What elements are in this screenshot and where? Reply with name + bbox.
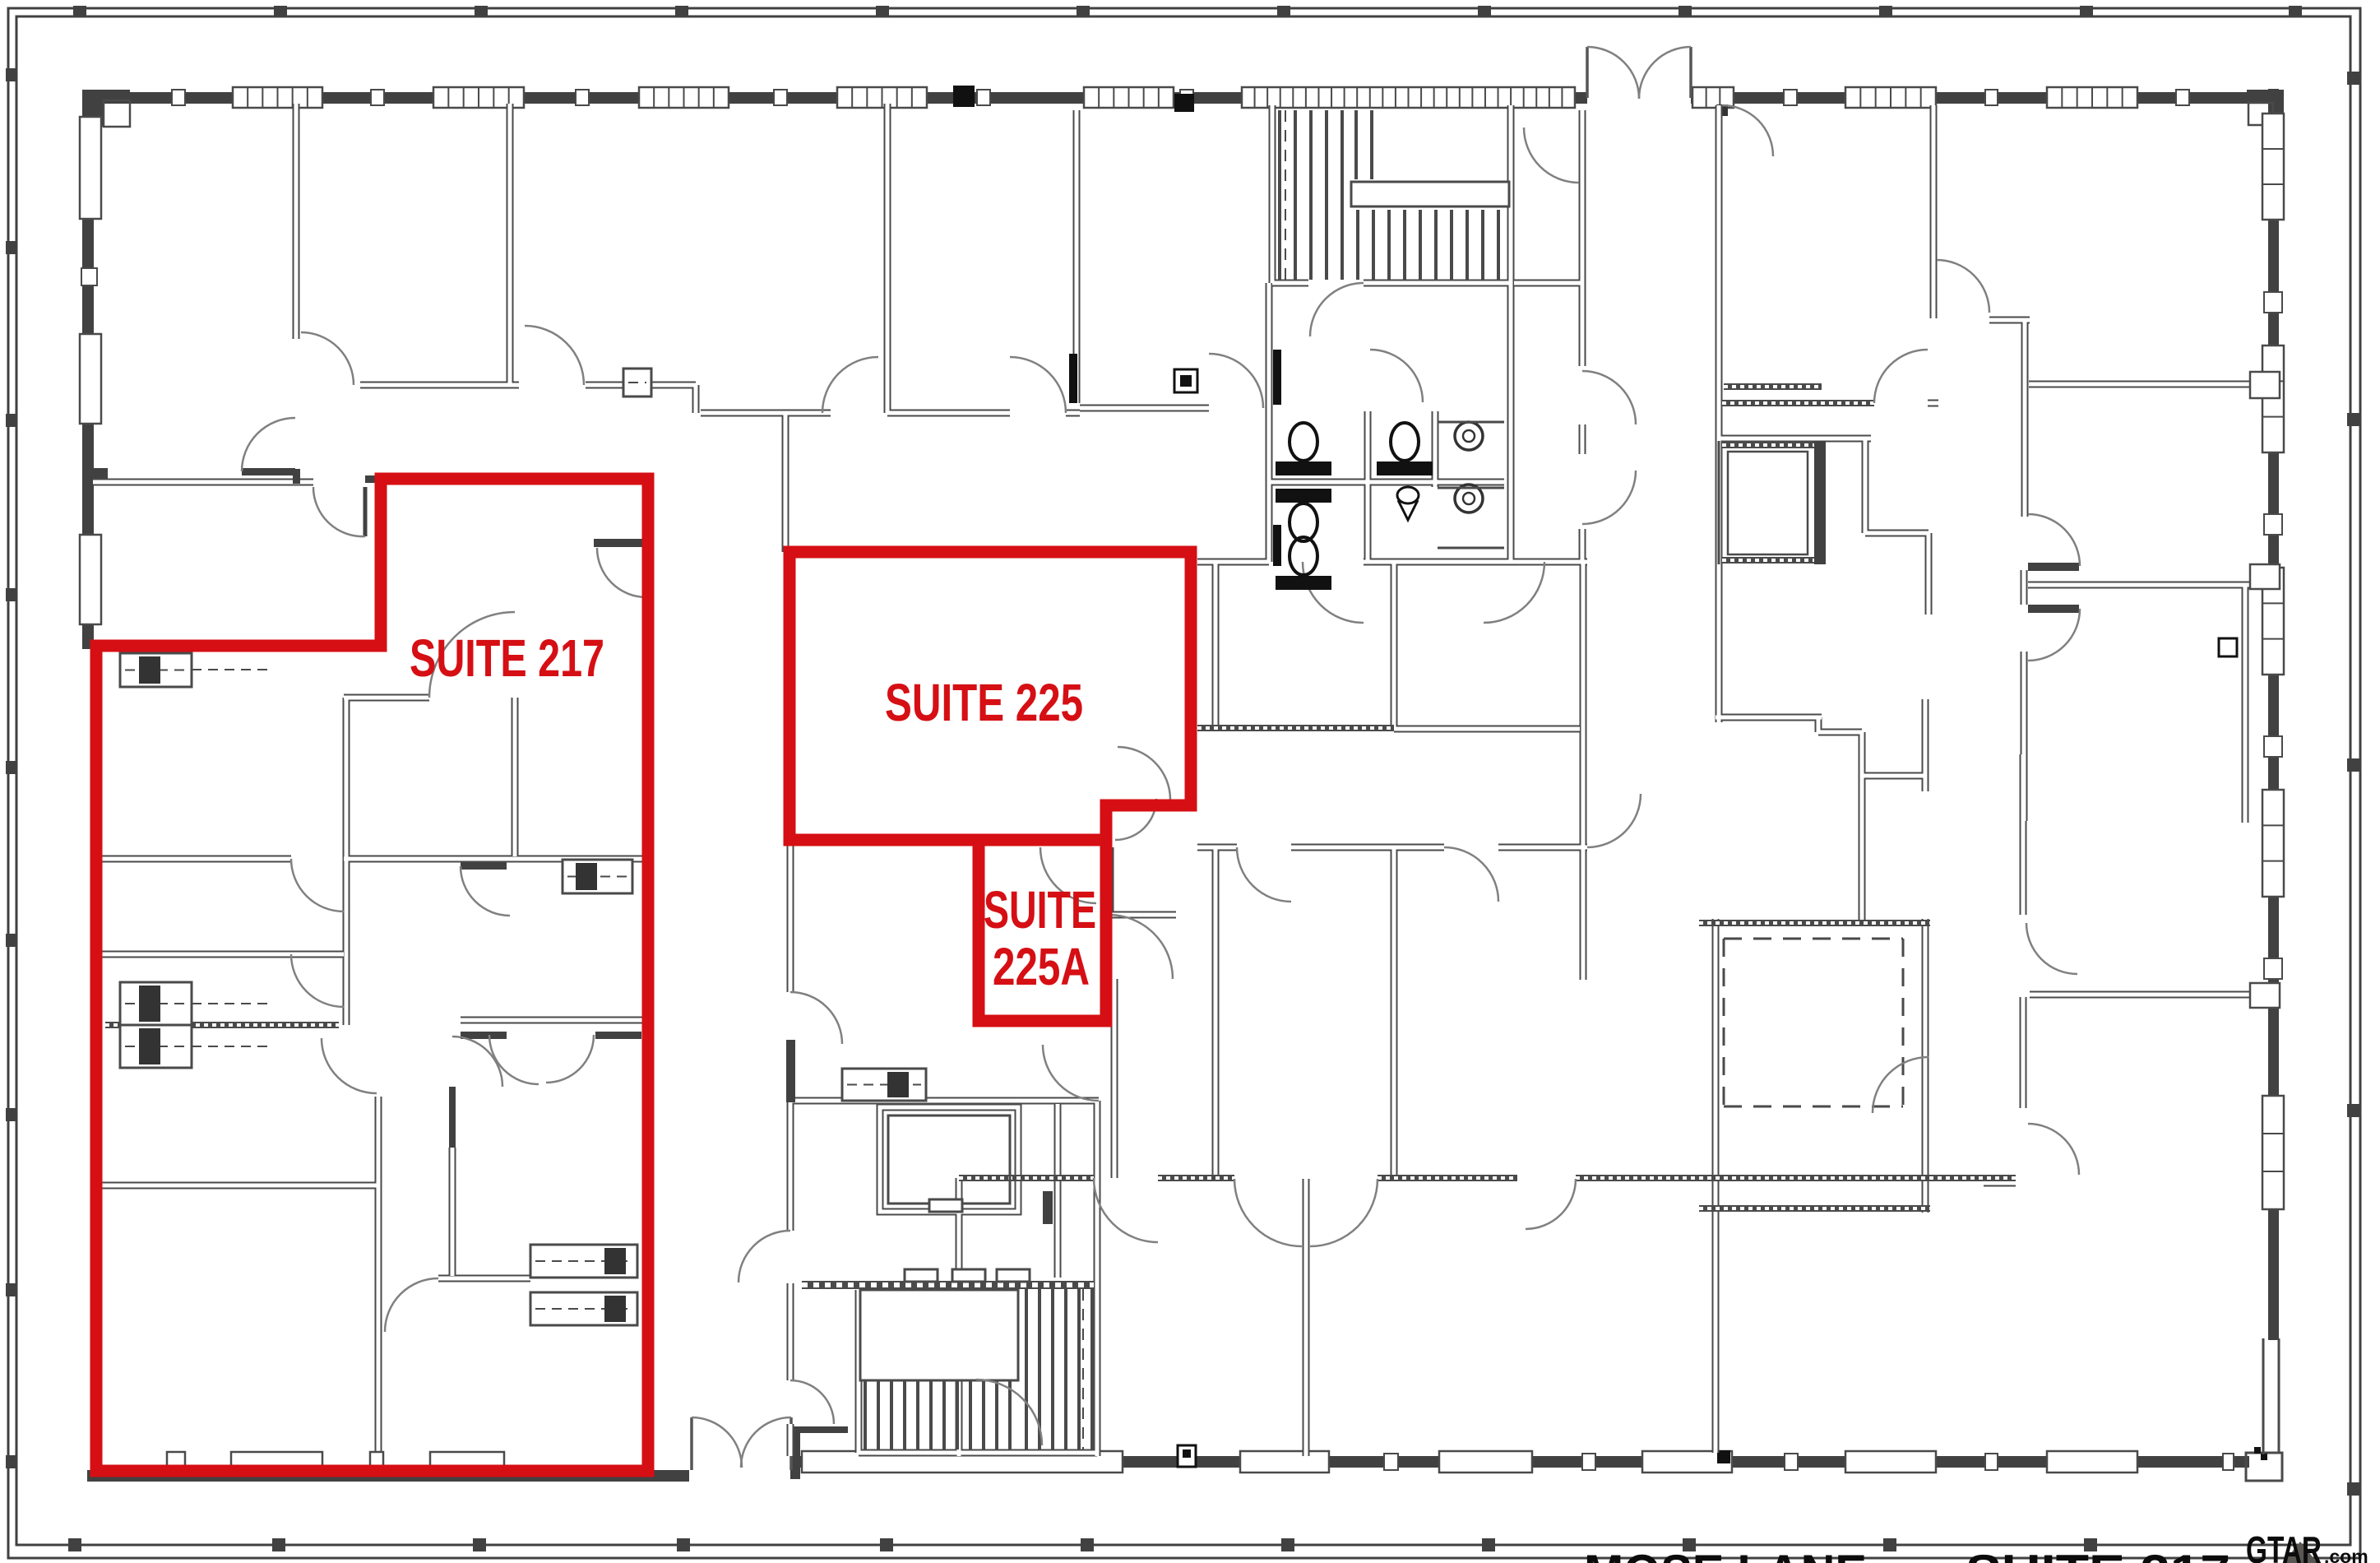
svg-text:GTAR: GTAR xyxy=(2246,1528,2322,1563)
svg-text:SUITE 217: SUITE 217 xyxy=(410,628,604,688)
svg-text:SUITE 217: SUITE 217 xyxy=(1966,1545,2230,1563)
svg-text:MOSE LANE: MOSE LANE xyxy=(1584,1545,1867,1563)
svg-text:225A: 225A xyxy=(993,937,1090,996)
svg-text:SUITE 225: SUITE 225 xyxy=(885,673,1083,732)
svg-text:.com: .com xyxy=(2324,1546,2368,1563)
svg-text:SUITE: SUITE xyxy=(984,880,1096,939)
